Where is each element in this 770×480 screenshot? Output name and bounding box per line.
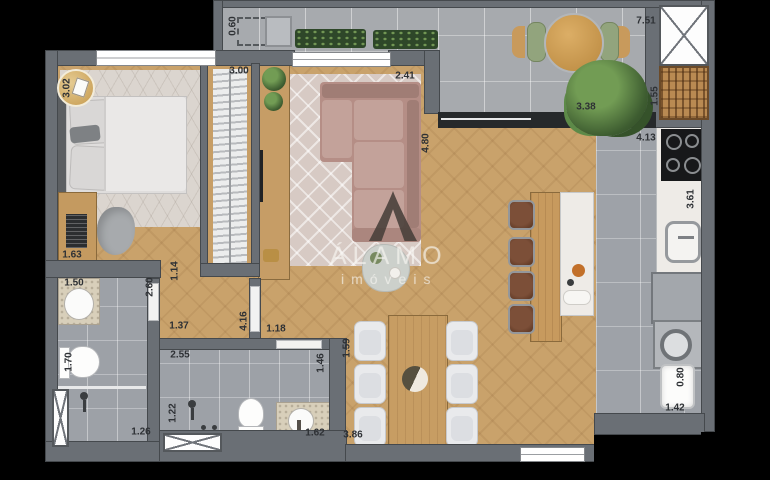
exterior (715, 0, 770, 480)
exterior (45, 0, 213, 50)
toilet (238, 398, 264, 428)
washer-door-icon (660, 329, 692, 361)
door-bathroom2 (276, 340, 322, 349)
ac-condenser-outline (237, 17, 267, 46)
potted-plant (262, 67, 286, 91)
shower-partition (58, 386, 146, 389)
exterior (594, 435, 715, 462)
brand-logo-icon (368, 190, 418, 242)
exterior (0, 0, 45, 480)
bar-stool (508, 304, 535, 334)
washing-machine (653, 320, 708, 369)
serving-tray (563, 290, 591, 305)
duvet (104, 97, 186, 191)
dining-chair (354, 364, 386, 404)
shower-pipe (83, 400, 86, 412)
dining-chair (354, 407, 386, 447)
sliding-door-leaf (441, 118, 531, 120)
sofa-seat-cushion (354, 100, 403, 140)
toilet (68, 346, 100, 378)
wall (594, 413, 705, 435)
decor-object (263, 249, 279, 262)
bathroom2-window (163, 433, 222, 452)
kitchen-sink (665, 221, 701, 263)
wall (45, 260, 161, 278)
shower-pipe (191, 408, 194, 420)
dining-chair (446, 321, 478, 361)
faucet-icon (678, 236, 694, 239)
wall (213, 0, 710, 8)
bedroom-window (96, 50, 216, 66)
dining-chair (354, 321, 386, 361)
brand-subtitle: imóveis (341, 271, 451, 287)
shower-head-icon (188, 400, 196, 408)
burner-icon (685, 134, 699, 148)
dining-window (520, 447, 585, 462)
elevator-shaft (659, 5, 709, 66)
island-dish (567, 279, 574, 286)
dining-chair (446, 407, 478, 447)
planter-box (373, 30, 438, 49)
floor-plan: 3.02 (0, 0, 770, 480)
dimension-label: 3.02 (62, 78, 73, 97)
living-window (292, 52, 391, 67)
dining-chair (446, 364, 478, 404)
laundry-sink (660, 364, 695, 409)
wall (424, 50, 440, 114)
bed-headboard (57, 94, 66, 194)
shower-head-icon (80, 392, 88, 400)
burner-icon (684, 157, 701, 174)
bathroom1-window (52, 389, 69, 447)
exterior (701, 432, 715, 480)
potted-plant (264, 92, 283, 111)
exterior (0, 462, 770, 480)
door-hallway (250, 286, 260, 332)
bathroom-sink (64, 288, 94, 320)
barbecue-grill (659, 66, 709, 120)
wardrobe (206, 62, 256, 276)
badge-marker-icon (72, 77, 90, 97)
laptop (66, 214, 87, 248)
balcony-bench (265, 16, 292, 47)
burner-icon (666, 158, 680, 172)
fruit-bowl (572, 264, 585, 277)
sofa-seat-cushion (322, 100, 352, 158)
wall (200, 63, 208, 265)
throw-pillow (69, 124, 101, 143)
sofa-back-cushion (322, 84, 419, 98)
brand-name: ÁLAMO (330, 242, 460, 271)
compass-badge: 3.02 (57, 69, 95, 107)
door-bathroom1 (148, 283, 159, 321)
table-centerpiece (402, 366, 428, 392)
wardrobe-rail (229, 69, 231, 269)
wall (213, 0, 223, 52)
wall (251, 63, 260, 277)
bar-stool (508, 271, 535, 301)
balcony-bench-curve (512, 26, 525, 58)
wall (200, 263, 260, 277)
sofa-seat-cushion (354, 142, 404, 188)
burner-icon (666, 134, 682, 150)
bar-stool (508, 237, 535, 267)
bar-stool (508, 200, 535, 230)
planter-box (295, 29, 366, 48)
